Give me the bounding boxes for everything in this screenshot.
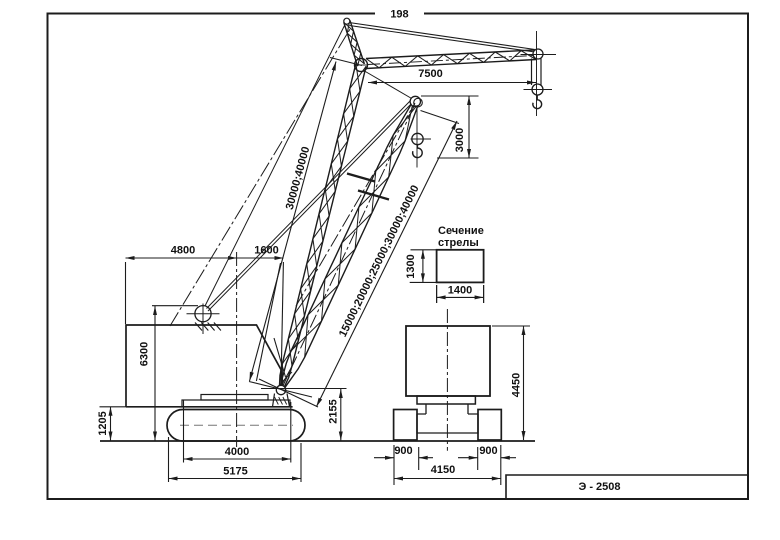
- svg-text:900: 900: [394, 445, 412, 457]
- svg-text:1300: 1300: [405, 254, 417, 278]
- svg-text:Сечение: Сечение: [438, 225, 484, 237]
- svg-text:Э - 2508: Э - 2508: [578, 481, 620, 493]
- svg-text:1400: 1400: [448, 285, 472, 297]
- svg-text:3000: 3000: [454, 128, 466, 152]
- svg-text:5175: 5175: [223, 466, 247, 478]
- svg-text:2155: 2155: [328, 399, 340, 423]
- svg-text:1205: 1205: [97, 411, 109, 435]
- svg-text:стрелы: стрелы: [438, 237, 479, 249]
- svg-text:4150: 4150: [431, 464, 455, 476]
- svg-text:900: 900: [479, 445, 497, 457]
- svg-text:1600: 1600: [254, 245, 278, 257]
- svg-text:4450: 4450: [511, 373, 523, 397]
- svg-text:4000: 4000: [225, 446, 249, 458]
- svg-text:7500: 7500: [418, 68, 442, 80]
- svg-text:198: 198: [390, 9, 408, 21]
- svg-text:4800: 4800: [171, 245, 195, 257]
- svg-text:6300: 6300: [139, 342, 151, 366]
